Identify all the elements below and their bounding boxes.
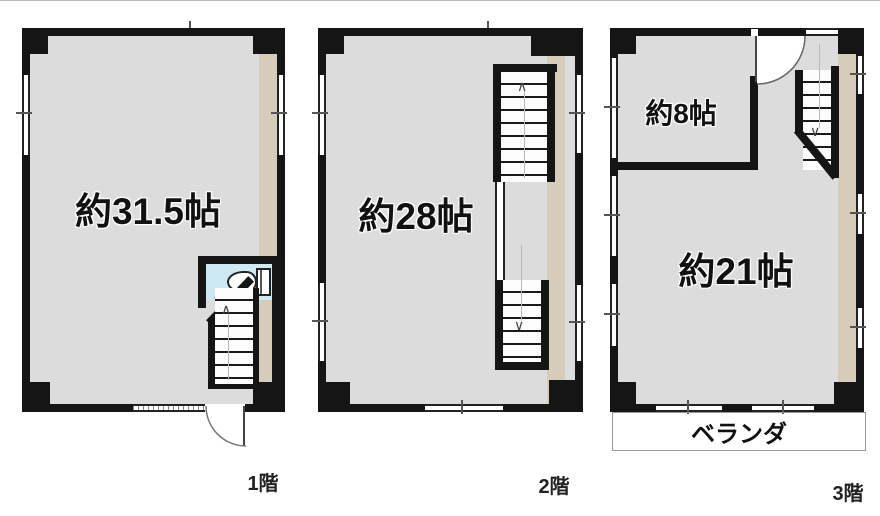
stairs-wall-left [795, 70, 803, 134]
window-tick [312, 112, 328, 114]
window-tick [850, 212, 866, 214]
image-bottom-border [0, 0, 880, 1]
window [856, 194, 864, 234]
stairs-wall-right [831, 66, 839, 178]
stairs-wall-bottom [495, 362, 549, 370]
partition-wall-bottom [610, 162, 758, 170]
toilet-wall-left [198, 256, 206, 308]
window [856, 56, 864, 94]
room-label-2f: 約28帖 [316, 186, 516, 240]
stairs-direction-line [524, 90, 525, 178]
window [425, 404, 503, 412]
room-label-1f: 約31.5帖 [38, 181, 258, 235]
corner-pillar [253, 28, 285, 54]
toilet-tank-line [260, 270, 262, 294]
window-tick [604, 214, 620, 216]
window-tick [461, 400, 463, 414]
stairs-up-arrow: ∧ [221, 302, 231, 316]
window-tick [16, 112, 32, 114]
window-tick [271, 112, 287, 114]
floor-caption-1f: 1階 [223, 467, 303, 496]
floor-caption-2f: 2階 [514, 470, 594, 499]
stairs-direction-line [521, 245, 522, 321]
wall-top [22, 28, 285, 36]
stairs-wall-right [541, 280, 549, 368]
toilet-wall-top [198, 256, 285, 264]
partition-wall-right [750, 76, 758, 170]
window-tick [604, 313, 620, 315]
balcony: ベランダ [612, 412, 866, 451]
stairs-wall-right [253, 288, 259, 386]
corner-pillar [531, 28, 583, 56]
corner-pillar [22, 382, 50, 412]
window [318, 283, 326, 361]
corner-pillar [838, 28, 864, 54]
stairs-wall-left [208, 322, 215, 386]
window-tick [850, 326, 866, 328]
accent-wall-strip [838, 54, 856, 404]
stairs-down-arrow: ∨ [514, 318, 524, 332]
window-tick [569, 321, 585, 323]
corner-pillar [610, 28, 636, 54]
door-opening [751, 29, 758, 36]
corner-pillar [610, 382, 636, 412]
window [22, 75, 30, 155]
shutter-door [133, 404, 205, 412]
window [318, 75, 326, 155]
corner-pillar [318, 382, 350, 412]
room-label-3f-small: 約8帖 [611, 92, 751, 132]
stairs-wall-left [495, 280, 503, 368]
stairs-direction-line [819, 44, 820, 128]
wall-bottom [610, 404, 864, 412]
stairs-up-arrow: ∧ [517, 79, 527, 93]
balcony-label: ベランダ [691, 414, 787, 449]
window [656, 404, 722, 412]
window [806, 28, 838, 36]
stairs-direction-line [228, 314, 229, 380]
window [575, 285, 583, 361]
accent-wall-strip [259, 46, 277, 258]
dimension-tick [189, 21, 191, 28]
corner-pillar [318, 28, 344, 54]
room-label-3f-main: 約21帖 [636, 241, 836, 295]
door-leaf [755, 36, 757, 82]
stairs-down-arrow: ∨ [810, 124, 820, 138]
window-tick [312, 320, 328, 322]
corner-pillar [22, 28, 48, 54]
window [277, 75, 285, 155]
corner-pillar [834, 382, 864, 412]
window [575, 75, 583, 153]
window [856, 308, 864, 348]
entrance-door-arc [206, 406, 246, 446]
window-tick [850, 73, 866, 75]
toilet-wall-right [272, 264, 279, 386]
floor-plan-page: ∧ 約31.5帖 1階 [0, 0, 880, 516]
dimension-tick [487, 21, 489, 28]
window [610, 284, 618, 346]
window [610, 176, 618, 256]
accent-wall-strip [259, 300, 272, 384]
stairs-wall-left [493, 64, 501, 182]
corner-pillar [549, 380, 583, 412]
stairs-wall-right [547, 64, 555, 182]
floor-caption-3f: 3階 [808, 477, 880, 506]
window-tick [569, 112, 585, 114]
stairs-wall-bottom [208, 384, 259, 389]
